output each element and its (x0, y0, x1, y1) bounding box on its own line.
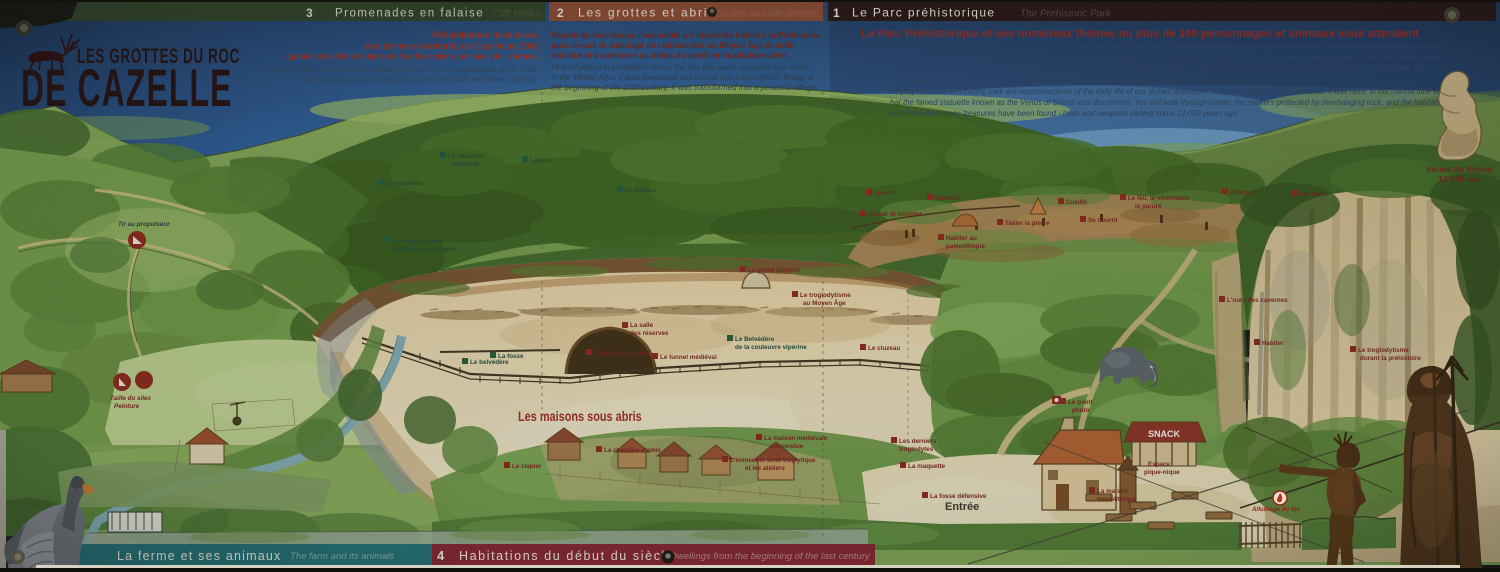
svg-text:Allumage du feu: Allumage du feu (1251, 506, 1300, 513)
